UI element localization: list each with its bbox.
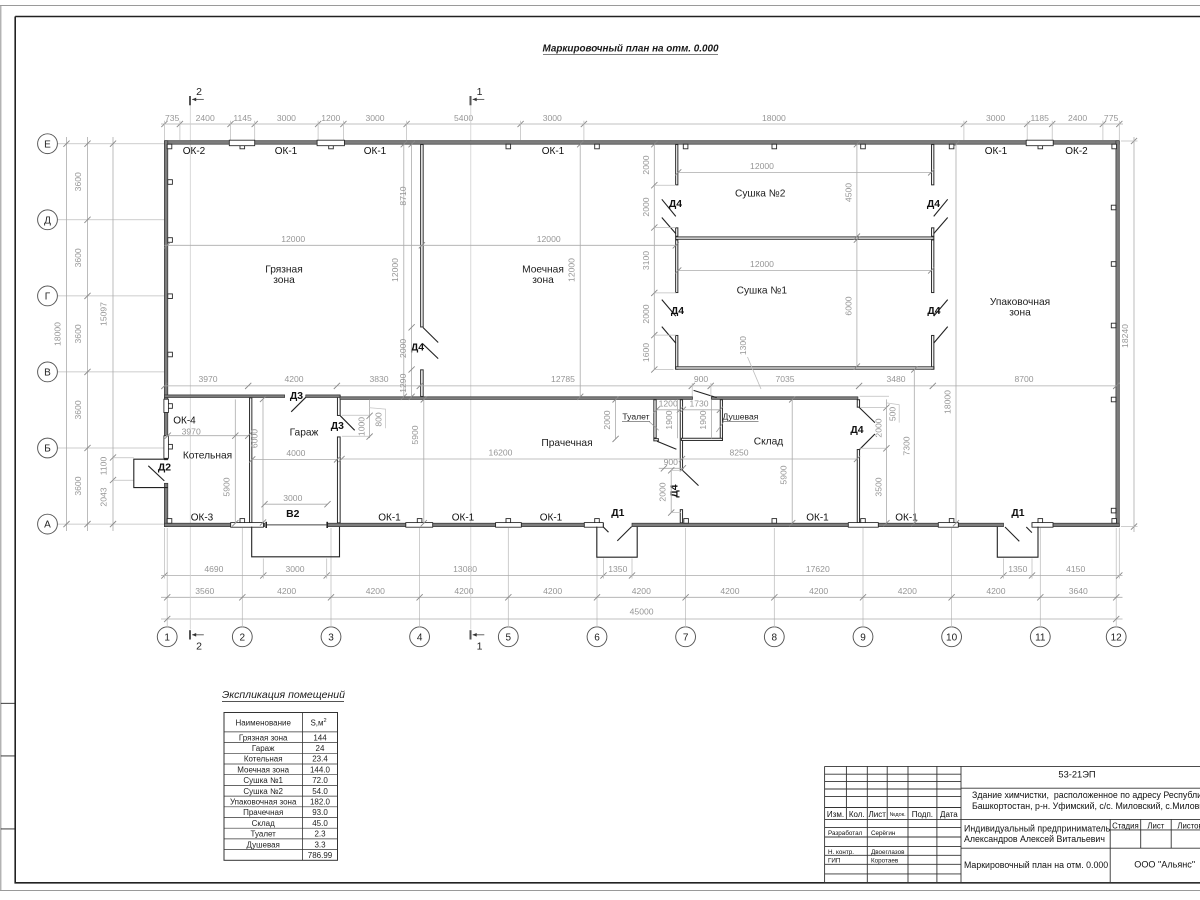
svg-text:1185: 1185 (1030, 113, 1049, 123)
svg-text:1: 1 (477, 641, 483, 653)
svg-text:Моечная зона: Моечная зона (237, 765, 289, 774)
svg-text:1200: 1200 (659, 399, 678, 409)
svg-text:11: 11 (1035, 632, 1046, 643)
svg-text:ОК-2: ОК-2 (1065, 146, 1088, 157)
svg-text:8700: 8700 (1014, 374, 1033, 384)
svg-text:5900: 5900 (410, 425, 420, 444)
svg-text:Д1: Д1 (1011, 508, 1024, 519)
svg-text:Прачечная: Прачечная (243, 808, 283, 817)
svg-text:Сушка №2: Сушка №2 (735, 189, 786, 200)
svg-text:5900: 5900 (222, 477, 232, 496)
svg-text:2000: 2000 (658, 482, 668, 501)
svg-text:53-21ЭП: 53-21ЭП (1058, 769, 1095, 779)
svg-text:12000: 12000 (567, 258, 577, 282)
svg-text:Туалет: Туалет (251, 830, 277, 839)
svg-text:Экспликация помещений: Экспликация помещений (222, 689, 345, 701)
svg-text:Д3: Д3 (290, 391, 303, 402)
svg-text:Гараж: Гараж (290, 428, 319, 439)
svg-text:Дата: Дата (940, 810, 958, 819)
svg-text:зона: зона (273, 275, 295, 286)
svg-text:Д4: Д4 (927, 306, 940, 317)
svg-text:4: 4 (417, 632, 423, 643)
svg-text:3970: 3970 (198, 374, 217, 384)
svg-text:Башкортостан, р-н. Уфимский, с: Башкортостан, р-н. Уфимский, с/с. Миловс… (972, 801, 1200, 811)
svg-text:Г: Г (45, 292, 51, 303)
svg-text:В2: В2 (286, 509, 300, 520)
svg-text:2: 2 (196, 641, 202, 653)
svg-text:1350: 1350 (1008, 564, 1027, 574)
svg-text:Д4: Д4 (411, 343, 424, 354)
svg-text:3640: 3640 (1069, 586, 1088, 596)
svg-text:А: А (44, 520, 51, 531)
svg-text:В: В (44, 368, 51, 379)
svg-text:4200: 4200 (284, 374, 303, 384)
svg-text:3.3: 3.3 (314, 840, 326, 849)
svg-text:Маркировочный план на отм. 0.0: Маркировочный план на отм. 0.000 (964, 860, 1108, 870)
svg-text:3600: 3600 (73, 400, 83, 419)
svg-text:18000: 18000 (762, 113, 786, 123)
svg-text:4200: 4200 (632, 586, 651, 596)
svg-text:2000: 2000 (398, 339, 408, 358)
svg-text:3600: 3600 (73, 172, 83, 191)
svg-text:8250: 8250 (729, 448, 748, 458)
svg-text:Д: Д (44, 215, 51, 226)
svg-text:2000: 2000 (873, 418, 883, 437)
svg-text:ОК-1: ОК-1 (452, 513, 475, 524)
svg-text:144: 144 (313, 733, 327, 742)
svg-text:1600: 1600 (641, 343, 651, 362)
svg-text:ОК-4: ОК-4 (173, 416, 196, 427)
svg-text:12000: 12000 (281, 234, 305, 244)
svg-text:2400: 2400 (196, 113, 215, 123)
svg-text:4200: 4200 (809, 586, 828, 596)
svg-text:10: 10 (946, 632, 958, 643)
svg-text:13080: 13080 (453, 564, 477, 574)
svg-text:6: 6 (594, 632, 600, 643)
svg-text:Сушка №1: Сушка №1 (737, 286, 788, 297)
svg-text:7035: 7035 (775, 374, 794, 384)
svg-text:Двоеглазов: Двоеглазов (871, 849, 905, 856)
svg-text:Склад: Склад (252, 819, 275, 828)
svg-text:18000: 18000 (942, 390, 952, 414)
svg-text:7: 7 (683, 632, 689, 643)
svg-text:Д1: Д1 (611, 508, 624, 519)
svg-text:4200: 4200 (898, 586, 917, 596)
svg-text:2000: 2000 (641, 304, 651, 323)
svg-text:3500: 3500 (873, 477, 883, 496)
svg-text:12785: 12785 (551, 374, 575, 384)
svg-text:18000: 18000 (53, 322, 63, 346)
svg-text:Е: Е (44, 139, 51, 150)
svg-text:500: 500 (888, 407, 898, 422)
svg-text:2: 2 (196, 86, 202, 98)
svg-text:4200: 4200 (366, 586, 385, 596)
svg-text:Разработал: Разработал (828, 829, 863, 837)
svg-text:Д4: Д4 (669, 199, 682, 210)
svg-text:182.0: 182.0 (310, 797, 331, 806)
svg-text:1: 1 (477, 86, 483, 98)
svg-text:ОК-2: ОК-2 (183, 146, 206, 157)
svg-text:ОК-3: ОК-3 (191, 513, 214, 524)
svg-text:6000: 6000 (249, 429, 259, 448)
svg-text:Н. контр.: Н. контр. (828, 849, 854, 856)
svg-text:Маркировочный план на отм. 0.0: Маркировочный план на отм. 0.000 (543, 44, 719, 55)
svg-text:Д4: Д4 (927, 199, 940, 210)
svg-text:Душевая: Душевая (723, 412, 759, 422)
svg-text:Грязная зона: Грязная зона (239, 733, 288, 742)
svg-text:2.3: 2.3 (314, 830, 326, 839)
svg-text:2400: 2400 (1068, 113, 1087, 123)
svg-text:ООО "Альянс": ООО "Альянс" (1134, 860, 1195, 870)
svg-text:1100: 1100 (99, 457, 109, 476)
svg-text:3600: 3600 (73, 324, 83, 343)
svg-text:Стадия: Стадия (1112, 822, 1139, 831)
svg-text:1145: 1145 (233, 113, 252, 123)
svg-text:2000: 2000 (641, 155, 651, 174)
svg-text:2: 2 (323, 718, 326, 724)
svg-text:900: 900 (694, 374, 709, 384)
svg-text:735: 735 (165, 113, 180, 123)
svg-text:12000: 12000 (390, 258, 400, 282)
svg-text:S,м: S,м (310, 718, 323, 727)
svg-text:12000: 12000 (750, 259, 774, 269)
svg-text:4200: 4200 (277, 586, 296, 596)
svg-text:3100: 3100 (641, 251, 651, 270)
svg-text:2043: 2043 (99, 487, 109, 506)
svg-text:1900: 1900 (664, 410, 674, 429)
svg-text:Кол.: Кол. (849, 810, 865, 819)
svg-text:3830: 3830 (369, 374, 388, 384)
svg-text:3000: 3000 (283, 493, 302, 503)
svg-text:3000: 3000 (986, 113, 1005, 123)
svg-text:54.0: 54.0 (312, 787, 328, 796)
svg-text:ОК-1: ОК-1 (275, 146, 298, 157)
svg-text:16200: 16200 (489, 448, 513, 458)
svg-text:Упаковочная зона: Упаковочная зона (230, 797, 297, 806)
svg-text:Д3: Д3 (331, 421, 344, 432)
svg-text:4200: 4200 (543, 586, 562, 596)
svg-text:1900: 1900 (698, 410, 708, 429)
svg-text:Б: Б (44, 444, 51, 455)
svg-text:18240: 18240 (1120, 324, 1130, 348)
svg-text:Склад: Склад (754, 437, 784, 448)
svg-text:Лист: Лист (1147, 822, 1164, 831)
svg-text:№док.: №док. (890, 812, 907, 818)
svg-text:4500: 4500 (843, 183, 853, 202)
svg-text:ОК-1: ОК-1 (895, 513, 918, 524)
svg-text:3560: 3560 (195, 586, 214, 596)
svg-text:900: 900 (664, 457, 679, 467)
svg-text:Серёгин: Серёгин (871, 830, 896, 837)
svg-text:Здание химчистки, расположенн: Здание химчистки, расположенное по адрес… (972, 790, 1200, 800)
svg-text:Подп.: Подп. (912, 810, 933, 819)
svg-text:3000: 3000 (285, 564, 304, 574)
svg-text:ОК-1: ОК-1 (985, 146, 1008, 157)
svg-text:Грязная: Грязная (265, 265, 303, 276)
svg-text:12: 12 (1111, 632, 1123, 643)
svg-text:775: 775 (1104, 113, 1119, 123)
svg-text:6000: 6000 (843, 296, 853, 315)
svg-text:15097: 15097 (99, 302, 109, 326)
svg-text:4200: 4200 (986, 586, 1005, 596)
svg-text:ОК-1: ОК-1 (540, 513, 563, 524)
svg-text:Гараж: Гараж (252, 744, 275, 753)
svg-text:4200: 4200 (720, 586, 739, 596)
svg-text:Наименование: Наименование (235, 718, 291, 727)
svg-text:1730: 1730 (689, 399, 708, 409)
svg-text:3970: 3970 (182, 427, 201, 437)
svg-text:4150: 4150 (1066, 564, 1085, 574)
svg-text:17620: 17620 (806, 564, 830, 574)
svg-text:1000: 1000 (356, 417, 366, 436)
svg-text:93.0: 93.0 (312, 808, 328, 817)
svg-text:2: 2 (240, 632, 246, 643)
svg-text:Сушка №2: Сушка №2 (243, 787, 283, 796)
svg-text:Д4: Д4 (850, 425, 863, 436)
svg-text:23.4: 23.4 (312, 755, 328, 764)
svg-text:3000: 3000 (365, 113, 384, 123)
svg-text:Душевая: Душевая (246, 840, 279, 849)
svg-text:ОК-1: ОК-1 (364, 146, 387, 157)
svg-text:800: 800 (373, 412, 383, 427)
svg-text:зона: зона (532, 275, 554, 286)
svg-text:1200: 1200 (321, 113, 340, 123)
svg-text:Котельная: Котельная (183, 451, 232, 462)
svg-text:1290: 1290 (398, 373, 408, 392)
svg-text:8: 8 (772, 632, 778, 643)
svg-text:1300: 1300 (738, 336, 748, 355)
svg-text:12000: 12000 (537, 234, 561, 244)
svg-text:Упаковочная: Упаковочная (990, 297, 1050, 308)
svg-text:Прачечная: Прачечная (541, 438, 592, 449)
svg-text:45.0: 45.0 (312, 819, 328, 828)
svg-text:Лист: Лист (869, 810, 887, 819)
svg-text:3480: 3480 (886, 374, 905, 384)
svg-text:5: 5 (506, 632, 512, 643)
svg-text:ОК-1: ОК-1 (542, 146, 565, 157)
svg-text:Изм.: Изм. (827, 810, 844, 819)
svg-text:Сушка №1: Сушка №1 (243, 776, 283, 785)
svg-text:9: 9 (860, 632, 866, 643)
svg-text:ОК-1: ОК-1 (806, 513, 829, 524)
svg-text:3: 3 (328, 632, 334, 643)
svg-text:Индивидуальный предприниматель: Индивидуальный предприниматель (964, 824, 1111, 834)
svg-text:Д2: Д2 (158, 463, 171, 474)
svg-text:ГИП: ГИП (828, 858, 841, 865)
svg-text:Коротаев: Коротаев (871, 858, 899, 865)
svg-text:12000: 12000 (750, 161, 774, 171)
svg-text:Александров Алексей Витальевич: Александров Алексей Витальевич (964, 834, 1105, 844)
svg-text:зона: зона (1009, 308, 1031, 319)
svg-text:786.99: 786.99 (308, 851, 333, 860)
svg-text:Листов: Листов (1177, 822, 1200, 831)
svg-text:Д4: Д4 (671, 306, 684, 317)
svg-text:Моечная: Моечная (522, 265, 564, 276)
svg-text:3600: 3600 (73, 248, 83, 267)
svg-text:1: 1 (164, 632, 170, 643)
svg-text:7300: 7300 (902, 436, 912, 455)
svg-text:24: 24 (316, 744, 325, 753)
svg-text:45000: 45000 (630, 607, 654, 617)
svg-text:Котельная: Котельная (244, 755, 283, 764)
svg-text:72.0: 72.0 (312, 776, 328, 785)
svg-text:2000: 2000 (602, 410, 612, 429)
svg-text:4690: 4690 (204, 564, 223, 574)
svg-text:3000: 3000 (543, 113, 562, 123)
svg-text:4000: 4000 (286, 448, 305, 458)
svg-text:5900: 5900 (779, 465, 789, 484)
svg-text:3000: 3000 (277, 113, 296, 123)
svg-text:8710: 8710 (398, 186, 408, 205)
svg-text:3600: 3600 (73, 476, 83, 495)
svg-text:ОК-1: ОК-1 (378, 513, 401, 524)
svg-text:2000: 2000 (641, 197, 651, 216)
svg-text:1350: 1350 (608, 564, 627, 574)
svg-text:Туалет: Туалет (622, 412, 649, 422)
svg-text:144.0: 144.0 (310, 765, 331, 774)
